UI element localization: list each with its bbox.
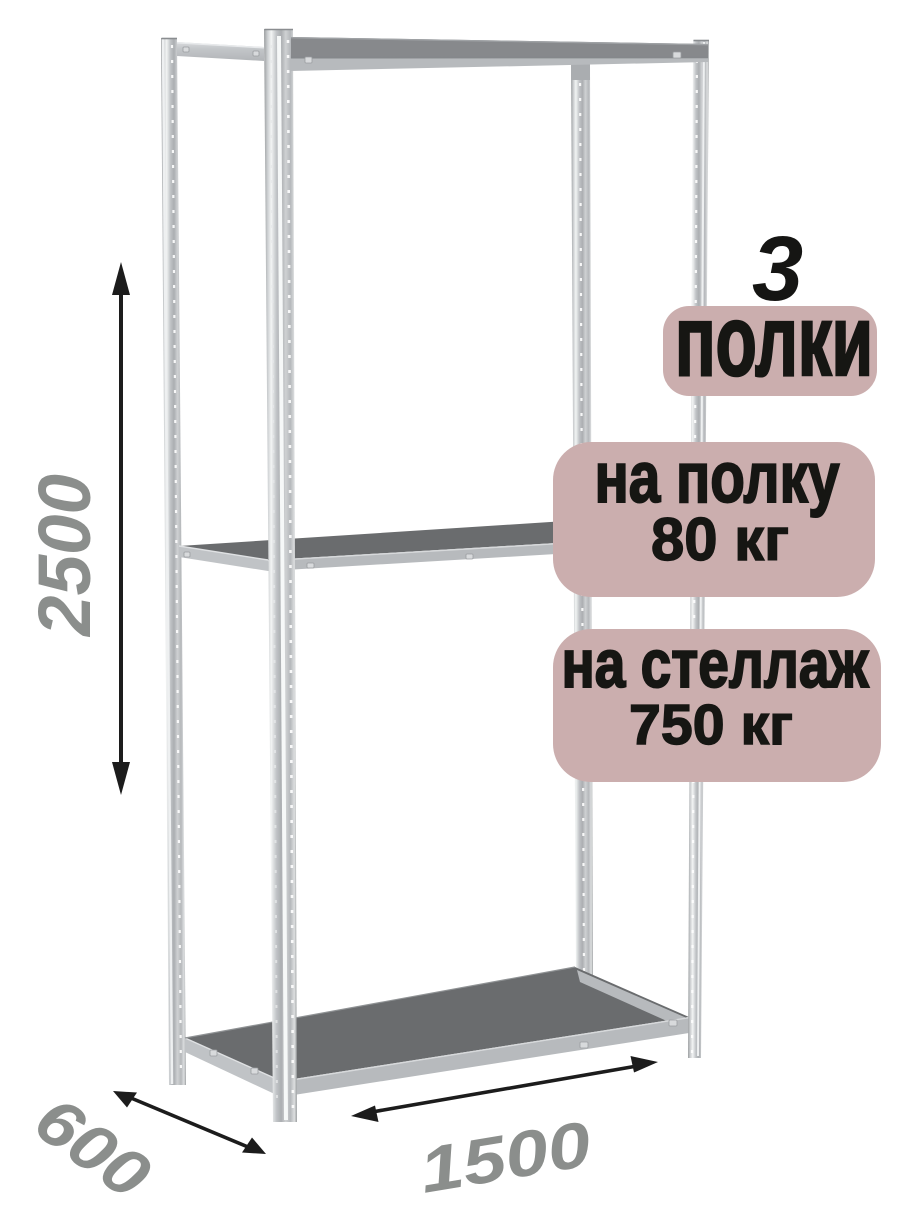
svg-text:80 кг: 80 кг [651, 506, 789, 573]
svg-text:2500: 2500 [23, 474, 106, 638]
svg-text:полки: полки [675, 285, 873, 397]
svg-text:750 кг: 750 кг [629, 693, 793, 757]
svg-text:1500: 1500 [414, 1107, 596, 1200]
svg-text:на стеллаж: на стеллаж [562, 626, 870, 702]
svg-text:600: 600 [22, 1081, 164, 1200]
